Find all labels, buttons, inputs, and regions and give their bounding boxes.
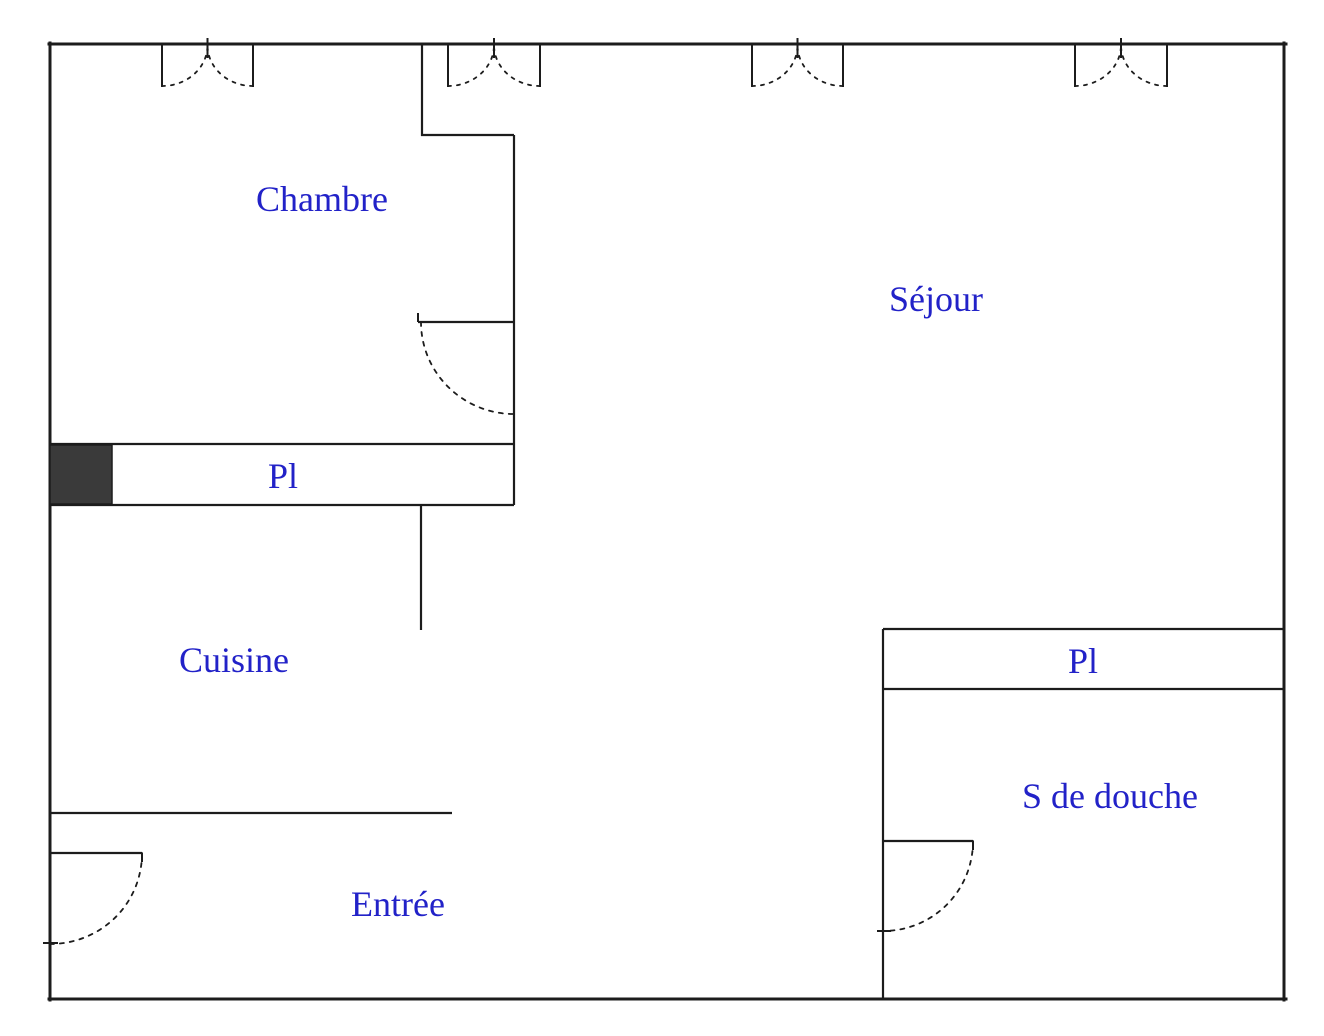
window-swing-arc-icon <box>1121 45 1167 86</box>
window-swing-arc-icon <box>752 45 798 86</box>
room-label-cuisine: Cuisine <box>179 640 289 680</box>
window-swing-arc-icon <box>494 45 540 86</box>
exterior-walls <box>49 43 1286 1000</box>
room-label-entree: Entrée <box>351 884 445 924</box>
room-label-sejour: Séjour <box>889 279 983 319</box>
window-swing-arc-icon <box>798 45 844 86</box>
room-label-salle-de-douche: S de douche <box>1022 776 1198 816</box>
window-swing-arc-icon <box>1075 45 1121 86</box>
window-swing-arc-icon <box>162 45 208 86</box>
douche-door-symbol <box>877 841 973 931</box>
room-label-chambre: Chambre <box>256 179 388 219</box>
chambre-door-symbol <box>418 313 514 414</box>
floor-plan-canvas: Chambre Séjour Pl Cuisine Pl S de douche… <box>0 0 1324 1036</box>
room-label-placard-douche: Pl <box>1068 641 1098 681</box>
door-swing-arc-icon <box>883 841 973 931</box>
room-label-placard-chambre: Pl <box>268 456 298 496</box>
interior-walls <box>50 44 1284 999</box>
door-swing-arc-icon <box>421 322 514 414</box>
window-swing-arc-icon <box>448 45 494 86</box>
floor-plan: Chambre Séjour Pl Cuisine Pl S de douche… <box>0 0 1324 1036</box>
duct-block-icon <box>50 445 112 504</box>
window-swing-arc-icon <box>208 45 254 86</box>
door-swing-arc-icon <box>50 853 142 944</box>
entree-door-symbol <box>43 853 142 944</box>
